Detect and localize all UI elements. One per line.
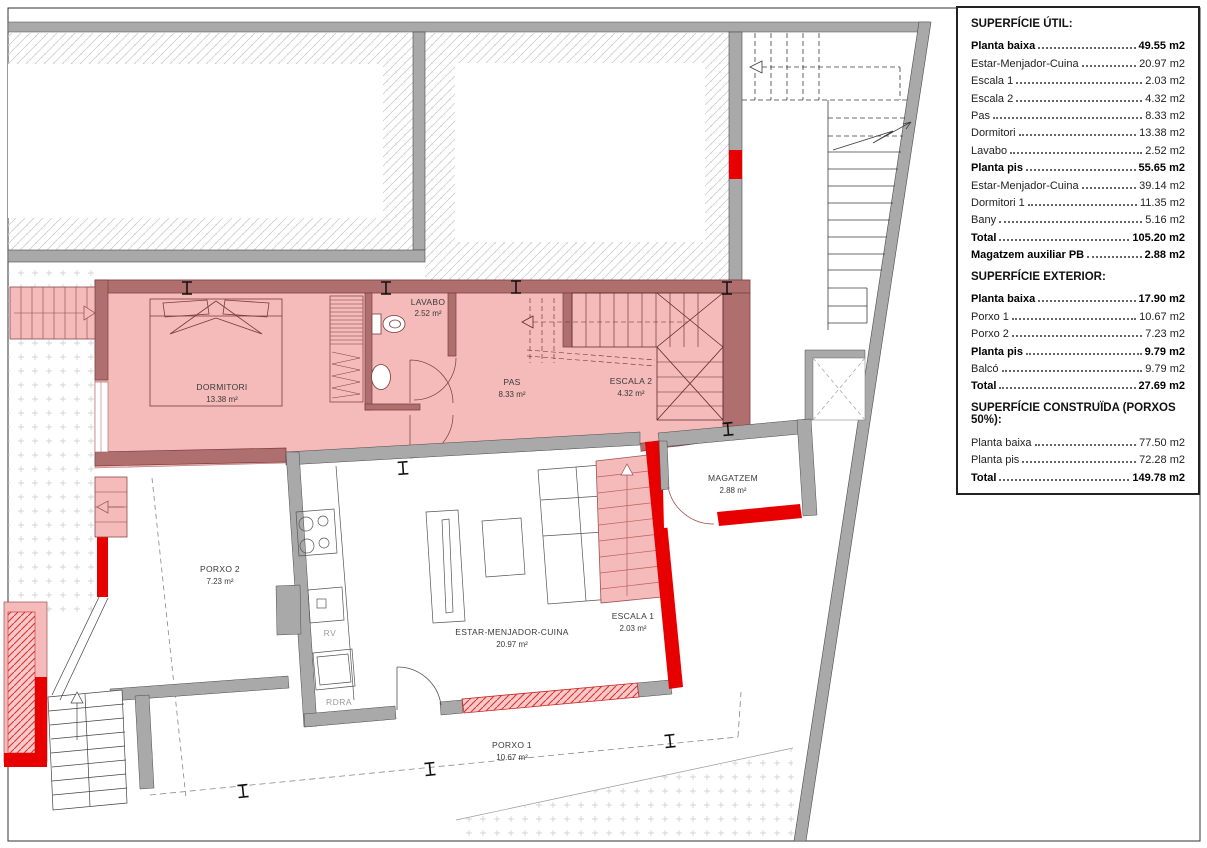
legend-row: Bany5.16 m2	[971, 209, 1185, 226]
legend-row-value: 7.23 m2	[1145, 328, 1185, 340]
legend-row-label: Dormitori	[971, 127, 1016, 139]
legend-section-title: SUPERFÍCIE EXTERIOR:	[971, 271, 1185, 283]
legend-row-value: 149.78 m2	[1132, 472, 1185, 484]
label-dormitori: DORMITORI	[196, 382, 247, 392]
leader-dots	[1026, 353, 1142, 355]
leader-dots	[1012, 335, 1142, 337]
legend-row-label: Estar-Menjador-Cuina	[971, 180, 1079, 192]
legend-row: Dormitori13.38 m2	[971, 122, 1185, 139]
legend-section: SUPERFÍCIE CONSTRUÏDA (PORXOS 50%):Plant…	[971, 402, 1185, 483]
legend-row: Pas8.33 m2	[971, 105, 1185, 122]
legend-panel: SUPERFÍCIE ÚTIL:Planta baixa49.55 m2Esta…	[956, 6, 1200, 495]
svg-text:2.88 m²: 2.88 m²	[719, 486, 746, 495]
legend-row-value: 8.33 m2	[1145, 110, 1185, 122]
planter	[4, 602, 47, 767]
legend-row-value: 39.14 m2	[1139, 180, 1185, 192]
label-escala1: ESCALA 1	[612, 611, 655, 621]
legend-row-label: Planta baixa	[971, 293, 1035, 305]
legend-row-value: 10.67 m2	[1139, 311, 1185, 323]
legend-row: Porxo 27.23 m2	[971, 323, 1185, 340]
legend-row-label: Dormitori 1	[971, 197, 1025, 209]
sink	[372, 365, 391, 390]
legend-row-label: Pas	[971, 110, 990, 122]
legend-row-label: Total	[971, 380, 996, 392]
legend-row-label: Planta baixa	[971, 437, 1032, 449]
legend-row: Total149.78 m2	[971, 466, 1185, 483]
legend-row-value: 2.52 m2	[1145, 145, 1185, 157]
legend-row-label: Bany	[971, 214, 996, 226]
label-magatzem: MAGATZEM	[708, 473, 758, 483]
legend-row-label: Porxo 1	[971, 311, 1009, 323]
legend-row: Planta pis9.79 m2	[971, 340, 1185, 357]
legend-row: Total27.69 m2	[971, 375, 1185, 392]
legend-row: Estar-Menjador-Cuina20.97 m2	[971, 52, 1185, 69]
legend-row-value: 2.88 m2	[1145, 249, 1185, 261]
floor-plan-sheet: DORMITORI 13.38 m² LAVABO 2.52 m² PAS 8.…	[0, 0, 1207, 848]
leader-dots	[1035, 444, 1137, 446]
legend-row-label: Escala 1	[971, 75, 1013, 87]
legend-section-title: SUPERFÍCIE ÚTIL:	[971, 18, 1185, 30]
legend-row-label: Magatzem auxiliar PB	[971, 249, 1084, 261]
legend-row-value: 5.16 m2	[1145, 214, 1185, 226]
label-pas: PAS	[503, 377, 520, 387]
legend-row: Escala 24.32 m2	[971, 87, 1185, 104]
legend-row-value: 27.69 m2	[1139, 380, 1185, 392]
legend-row: Porxo 110.67 m2	[971, 305, 1185, 322]
leader-dots	[999, 387, 1135, 389]
svg-text:20.97 m²: 20.97 m²	[496, 640, 528, 649]
legend-row-value: 49.55 m2	[1139, 40, 1185, 52]
legend-row-label: Total	[971, 232, 996, 244]
legend-row: Planta pis72.28 m2	[971, 449, 1185, 466]
label-lavabo: LAVABO	[411, 297, 446, 307]
leader-dots	[1082, 187, 1137, 189]
legend-row: Total105.20 m2	[971, 226, 1185, 243]
legend-row-value: 20.97 m2	[1139, 58, 1185, 70]
legend-row-label: Lavabo	[971, 145, 1007, 157]
legend-section: SUPERFÍCIE ÚTIL:Planta baixa49.55 m2Esta…	[971, 18, 1185, 261]
svg-text:10.67 m²: 10.67 m²	[496, 753, 528, 762]
legend-row-value: 55.65 m2	[1139, 162, 1185, 174]
leader-dots	[1012, 318, 1136, 320]
label-rv: RV	[324, 628, 337, 638]
leader-dots	[1082, 65, 1137, 67]
legend-row-label: Planta pis	[971, 454, 1019, 466]
legend-row: Escala 12.03 m2	[971, 70, 1185, 87]
leader-dots	[993, 117, 1142, 119]
leader-dots	[1016, 82, 1142, 84]
legend-row-value: 4.32 m2	[1145, 93, 1185, 105]
legend-row-value: 9.79 m2	[1145, 363, 1185, 375]
legend-row-label: Escala 2	[971, 93, 1013, 105]
label-porxo1: PORXO 1	[492, 740, 532, 750]
leader-dots	[1022, 461, 1136, 463]
neighbor-parcels	[8, 33, 729, 280]
legend-row: Lavabo2.52 m2	[971, 139, 1185, 156]
red-wall-patch	[729, 150, 742, 179]
legend-row-value: 11.35 m2	[1140, 197, 1185, 209]
toilet	[372, 314, 405, 334]
leader-dots	[1087, 256, 1142, 258]
legend-row-label: Estar-Menjador-Cuina	[971, 58, 1079, 70]
legend-row-value: 77.50 m2	[1139, 437, 1185, 449]
overlay-window	[95, 382, 108, 452]
leader-dots	[1038, 300, 1135, 302]
leader-dots	[1038, 47, 1135, 49]
svg-text:2.52 m²: 2.52 m²	[414, 309, 441, 318]
legend-row: Dormitori 111.35 m2	[971, 192, 1185, 209]
leader-dots	[1026, 169, 1136, 171]
legend-section-title: SUPERFÍCIE CONSTRUÏDA (PORXOS 50%):	[971, 402, 1185, 426]
legend-row: Magatzem auxiliar PB2.88 m2	[971, 244, 1185, 261]
legend-row-label: Total	[971, 472, 996, 484]
leader-dots	[1002, 370, 1143, 372]
legend-row-value: 9.79 m2	[1145, 346, 1185, 358]
legend-row-label: Planta baixa	[971, 40, 1035, 52]
legend-row-label: Planta pis	[971, 346, 1023, 358]
svg-text:4.32 m²: 4.32 m²	[617, 389, 644, 398]
leader-dots	[999, 239, 1129, 241]
legend-section: SUPERFÍCIE EXTERIOR:Planta baixa17.90 m2…	[971, 271, 1185, 392]
legend-row-value: 17.90 m2	[1139, 293, 1185, 305]
legend-row-label: Balcó	[971, 363, 999, 375]
legend-row-label: Porxo 2	[971, 328, 1009, 340]
leader-dots	[1019, 134, 1137, 136]
leader-dots	[999, 479, 1129, 481]
exterior-stair	[48, 690, 127, 810]
legend-row: Planta pis55.65 m2	[971, 157, 1185, 174]
svg-text:2.03 m²: 2.03 m²	[619, 624, 646, 633]
leader-dots	[999, 221, 1142, 223]
legend-row: Planta baixa77.50 m2	[971, 431, 1185, 448]
legend-row-value: 72.28 m2	[1139, 454, 1185, 466]
label-rdra: RDRA	[326, 697, 352, 707]
legend-row-value: 2.03 m2	[1145, 75, 1185, 87]
legend-row-label: Planta pis	[971, 162, 1023, 174]
red-wall-left	[97, 537, 108, 597]
legend-row: Planta baixa49.55 m2	[971, 35, 1185, 52]
legend-row: Planta baixa17.90 m2	[971, 288, 1185, 305]
leader-dots	[1028, 204, 1137, 206]
label-estar: ESTAR-MENJADOR-CUINA	[455, 627, 569, 637]
svg-text:13.38 m²: 13.38 m²	[206, 395, 238, 404]
legend-row-value: 13.38 m2	[1139, 127, 1185, 139]
svg-text:8.33 m²: 8.33 m²	[498, 390, 525, 399]
legend-row: Estar-Menjador-Cuina39.14 m2	[971, 174, 1185, 191]
leader-dots	[1016, 100, 1142, 102]
label-porxo2: PORXO 2	[200, 564, 240, 574]
legend-row: Balcó9.79 m2	[971, 358, 1185, 375]
svg-text:7.23 m²: 7.23 m²	[206, 577, 233, 586]
label-escala2: ESCALA 2	[610, 376, 653, 386]
legend-row-value: 105.20 m2	[1132, 232, 1185, 244]
leader-dots	[1010, 152, 1142, 154]
